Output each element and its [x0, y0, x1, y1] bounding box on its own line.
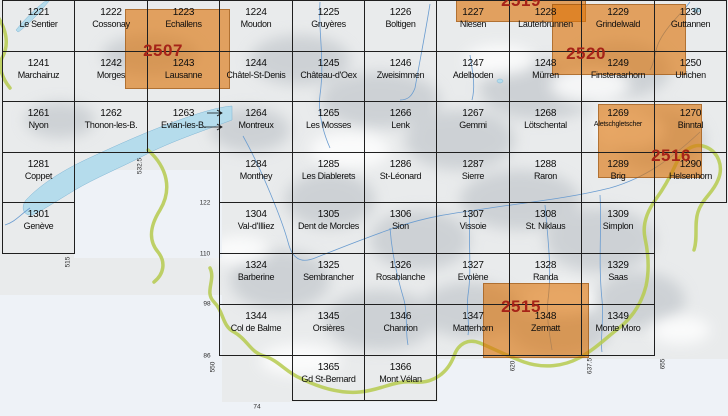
- sheet-number: 1347: [462, 310, 483, 323]
- sheet-1305[interactable]: 1305Dent de Morcles: [292, 202, 365, 254]
- sheet-name: Val-d'Illiez: [238, 221, 274, 233]
- sheet-name: Helsenhorn: [669, 171, 712, 183]
- sheet-number: 1284: [245, 158, 266, 171]
- sheet-number: 1306: [390, 208, 411, 221]
- sheet-name: Montreux: [238, 120, 273, 132]
- sheet-1263[interactable]: 1263Evian-les-B.: [147, 101, 220, 153]
- sheet-name: Orsières: [313, 323, 345, 335]
- sheet-number: 1229: [607, 6, 628, 19]
- sheet-number: 1262: [100, 107, 121, 120]
- sheet-number: 1285: [318, 158, 339, 171]
- sheet-name: Les Mosses: [306, 120, 351, 132]
- sheet-name: Finsteraarhorn: [591, 70, 645, 82]
- sheet-1289[interactable]: 1289Brig: [581, 152, 655, 203]
- sheet-name: Niesen: [460, 19, 486, 31]
- sheet-1221[interactable]: 1221Le Sentier: [2, 0, 75, 52]
- coordinate-label: 98: [203, 301, 210, 308]
- sheet-number: 1349: [607, 310, 628, 323]
- sheet-1327[interactable]: 1327Evolène: [436, 253, 510, 305]
- sheet-number: 1242: [100, 57, 121, 70]
- composite-number: 2507: [143, 41, 183, 61]
- sheet-number: 1326: [390, 259, 411, 272]
- sheet-1222[interactable]: 1222Cossonay: [74, 0, 148, 52]
- sheet-name: Sion: [392, 221, 409, 233]
- sheet-1324[interactable]: 1324Barberine: [219, 253, 293, 305]
- sheet-1265[interactable]: 1265Les Mosses: [292, 101, 365, 153]
- sheet-1288[interactable]: 1288Raron: [509, 152, 582, 203]
- coordinate-label: 122: [200, 200, 211, 207]
- sheet-1246[interactable]: 1246Zweisimmen: [364, 51, 437, 102]
- sheet-1344[interactable]: 1344Col de Balme: [219, 304, 293, 356]
- sheet-number: 1324: [245, 259, 266, 272]
- sheet-name: Echallens: [165, 19, 201, 31]
- sheet-name: Genève: [24, 221, 54, 233]
- sheet-name: Les Diablerets: [302, 171, 355, 183]
- sheet-number: 1366: [390, 361, 411, 374]
- sheet-1366[interactable]: 1366Mont Vélan: [364, 355, 437, 401]
- sheet-1284[interactable]: 1284Monthey: [219, 152, 293, 203]
- sheet-1365[interactable]: 1365Gd St-Bernard: [292, 355, 365, 401]
- sheet-name: Raron: [534, 171, 557, 183]
- sheet-1306[interactable]: 1306Sion: [364, 202, 437, 254]
- sheet-name: Evolène: [458, 272, 488, 284]
- sheet-name: Marchairuz: [18, 70, 60, 82]
- sheet-number: 1221: [28, 6, 49, 19]
- sheet-1244[interactable]: 1244Châtel-St-Denis: [219, 51, 293, 102]
- coordinate-label: 655: [660, 359, 667, 370]
- sheet-1345[interactable]: 1345Orsières: [292, 304, 365, 356]
- sheet-name: Brig: [611, 171, 626, 183]
- sheet-name: Monthey: [240, 171, 272, 183]
- sheet-number: 1249: [607, 57, 628, 70]
- sheet-name: Lausanne: [165, 70, 202, 82]
- sheet-1242[interactable]: 1242Morges: [74, 51, 148, 102]
- sheet-name: Lenk: [391, 120, 409, 132]
- sheet-name: Gemmi: [459, 120, 487, 132]
- sheet-number: 1345: [318, 310, 339, 323]
- sheet-number: 1222: [100, 6, 121, 19]
- sheet-name: Sembrancher: [303, 272, 354, 284]
- sheet-number: 1265: [318, 107, 339, 120]
- sheet-1225[interactable]: 1225Gruyères: [292, 0, 365, 52]
- sheet-1261[interactable]: 1261Nyon: [2, 101, 75, 153]
- sheet-number: 1304: [245, 208, 266, 221]
- sheet-name: Nyon: [29, 120, 49, 132]
- sheet-number: 1250: [680, 57, 701, 70]
- sheet-number: 1267: [462, 107, 483, 120]
- composite-number: 2516: [651, 146, 691, 166]
- sheet-number: 1268: [535, 107, 556, 120]
- sheet-name: Adelboden: [453, 70, 493, 82]
- sheet-name: Le Sentier: [19, 19, 57, 31]
- sheet-number: 1264: [245, 107, 266, 120]
- sheet-1224[interactable]: 1224Moudon: [219, 0, 293, 52]
- sheet-1301[interactable]: 1301Genève: [2, 202, 75, 254]
- sheet-name: Morges: [97, 70, 125, 82]
- sheet-name: Gruyères: [311, 19, 346, 31]
- sheet-1266[interactable]: 1266Lenk: [364, 101, 437, 153]
- sheet-name: Lauterbrunnen: [518, 19, 573, 31]
- sheet-number: 1226: [390, 6, 411, 19]
- sheet-name: Aletschgletscher: [594, 120, 642, 129]
- sheet-number: 1346: [390, 310, 411, 323]
- sheet-name: Monte Moro: [595, 323, 640, 335]
- sheet-number: 1309: [607, 208, 628, 221]
- sheet-1287[interactable]: 1287Sierre: [436, 152, 510, 203]
- sheet-name: Moudon: [241, 19, 272, 31]
- coordinate-label: 637.5: [587, 358, 594, 374]
- coordinate-label: 86: [203, 353, 210, 360]
- sheet-number: 1263: [173, 107, 194, 120]
- sheet-number: 1305: [318, 208, 339, 221]
- sheet-1281[interactable]: 1281Coppet: [2, 152, 75, 203]
- sheet-number: 1227: [462, 6, 483, 19]
- sheet-1230[interactable]: 1230Guttannen: [654, 0, 727, 52]
- sheet-1227[interactable]: 1227Niesen: [436, 0, 510, 52]
- sheet-number: 1287: [462, 158, 483, 171]
- sheet-number: 1247: [462, 57, 483, 70]
- sheet-name: Rosablanche: [376, 272, 425, 284]
- sheet-number: 1261: [28, 107, 49, 120]
- composite-number: 2519: [501, 0, 541, 11]
- sheet-number: 1327: [462, 259, 483, 272]
- sheet-1326[interactable]: 1326Rosablanche: [364, 253, 437, 305]
- sheet-name: Cossonay: [92, 19, 130, 31]
- sheet-name: Chanrion: [383, 323, 417, 335]
- sheet-name: Château-d'Oex: [300, 70, 356, 82]
- sheet-name: Simplon: [603, 221, 633, 233]
- sheet-name: Binntal: [678, 120, 703, 132]
- sheet-number: 1223: [173, 6, 194, 19]
- sheet-1250[interactable]: 1250Ulrichen: [654, 51, 727, 102]
- composite-number: 2515: [501, 297, 541, 317]
- sheet-name: Lötschental: [524, 120, 567, 132]
- sheet-number: 1266: [390, 107, 411, 120]
- sheet-1245[interactable]: 1245Château-d'Oex: [292, 51, 365, 102]
- sheet-name: Zweisimmen: [377, 70, 425, 82]
- map-sheet-index: 251925072520251625151221Le Sentier1222Co…: [0, 0, 728, 416]
- sheet-1346[interactable]: 1346Chanrion: [364, 304, 437, 356]
- composite-number: 2520: [566, 44, 606, 64]
- sheet-1329[interactable]: 1329Saas: [581, 253, 655, 305]
- sheet-1309[interactable]: 1309Simplon: [581, 202, 655, 254]
- sheet-1264[interactable]: 1264Montreux: [219, 101, 293, 153]
- sheet-number: 1286: [390, 158, 411, 171]
- sheet-number: 1301: [28, 208, 49, 221]
- sheet-name: Saas: [608, 272, 627, 284]
- sheet-1349[interactable]: 1349Monte Moro: [581, 304, 655, 356]
- sheet-number: 1329: [607, 259, 628, 272]
- sheet-number: 1307: [462, 208, 483, 221]
- sheet-name: Vissoie: [460, 221, 487, 233]
- sheet-name: Gd St-Bernard: [301, 374, 355, 386]
- sheet-number: 1288: [535, 158, 556, 171]
- sheet-1307[interactable]: 1307Vissoie: [436, 202, 510, 254]
- coordinate-label: 74: [253, 404, 260, 411]
- sheet-number: 1248: [535, 57, 556, 70]
- coordinate-label: 515: [65, 257, 72, 268]
- sheet-number: 1241: [28, 57, 49, 70]
- sheet-1268[interactable]: 1268Lötschental: [509, 101, 582, 153]
- sheet-name: Boltigen: [385, 19, 415, 31]
- sheet-number: 1244: [245, 57, 266, 70]
- sheet-number: 1325: [318, 259, 339, 272]
- coordinate-label: 620: [510, 361, 517, 372]
- sheet-name: Thonon-les-B.: [85, 120, 138, 132]
- sheet-name: Coppet: [25, 171, 52, 183]
- sheet-name: Sierre: [462, 171, 484, 183]
- sheet-name: Mont Vélan: [379, 374, 422, 386]
- sheet-number: 1344: [245, 310, 266, 323]
- sheet-number: 1269: [607, 107, 628, 120]
- sheet-1304[interactable]: 1304Val-d'Illiez: [219, 202, 293, 254]
- sheet-name: St-Léonard: [380, 171, 422, 183]
- sheet-number: 1225: [318, 6, 339, 19]
- sheet-number: 1328: [535, 259, 556, 272]
- sheet-name: Mürren: [532, 70, 559, 82]
- sheet-name: St. Niklaus: [526, 221, 566, 233]
- sheet-1325[interactable]: 1325Sembrancher: [292, 253, 365, 305]
- sheet-name: Evian-les-B.: [161, 120, 206, 132]
- sheet-1241[interactable]: 1241Marchairuz: [2, 51, 75, 102]
- sheet-1267[interactable]: 1267Gemmi: [436, 101, 510, 153]
- sheet-1347[interactable]: 1347Matterhorn: [436, 304, 510, 356]
- sheet-name: Guttannen: [671, 19, 710, 31]
- sheet-name: Grindelwald: [596, 19, 640, 31]
- coordinate-label: 532.5: [137, 158, 144, 174]
- sheet-name: Zermatt: [531, 323, 560, 335]
- sheet-name: Barberine: [238, 272, 274, 284]
- sheet-number: 1246: [390, 57, 411, 70]
- sheet-1269[interactable]: 1269Aletschgletscher: [581, 101, 655, 153]
- sheet-number: 1281: [28, 158, 49, 171]
- sheet-name: Col de Balme: [231, 323, 281, 335]
- sheet-1285[interactable]: 1285Les Diablerets: [292, 152, 365, 203]
- sheet-number: 1289: [607, 158, 628, 171]
- coordinate-label: 550: [210, 362, 217, 373]
- coordinate-label: 110: [200, 251, 210, 258]
- sheet-name: Matterhorn: [453, 323, 494, 335]
- sheet-number: 1230: [680, 6, 701, 19]
- sheet-1247[interactable]: 1247Adelboden: [436, 51, 510, 102]
- sheet-number: 1308: [535, 208, 556, 221]
- sheet-number: 1224: [245, 6, 266, 19]
- sheet-name: Ulrichen: [675, 70, 706, 82]
- sheet-name: Dent de Morcles: [298, 221, 359, 233]
- sheet-name: Châtel-St-Denis: [226, 70, 285, 82]
- sheet-1308[interactable]: 1308St. Niklaus: [509, 202, 582, 254]
- sheet-1226[interactable]: 1226Boltigen: [364, 0, 437, 52]
- sheet-1262[interactable]: 1262Thonon-les-B.: [74, 101, 148, 153]
- sheet-number: 1245: [318, 57, 339, 70]
- sheet-number: 1365: [318, 361, 339, 374]
- sheet-number: 1270: [680, 107, 701, 120]
- sheet-name: Randa: [533, 272, 558, 284]
- sheet-1286[interactable]: 1286St-Léonard: [364, 152, 437, 203]
